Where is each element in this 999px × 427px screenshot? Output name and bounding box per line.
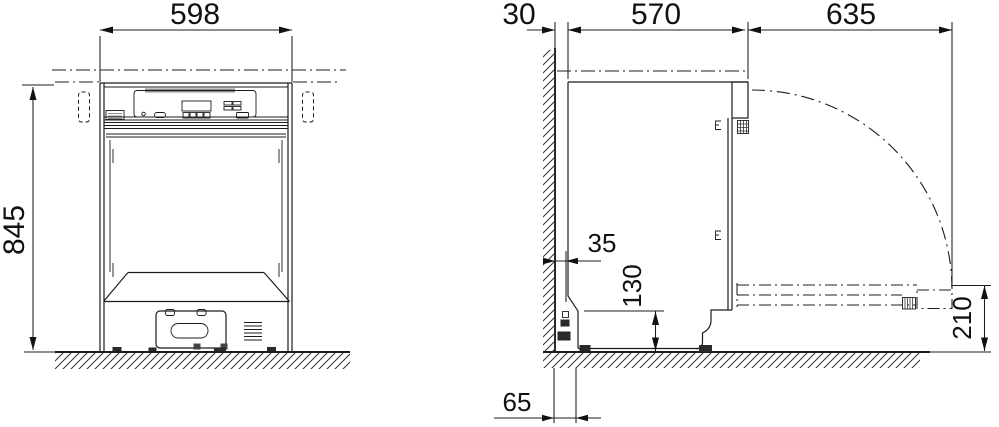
dimension-line bbox=[584, 311, 664, 351]
power-button bbox=[142, 112, 146, 116]
worktop-lines bbox=[52, 70, 346, 82]
dim-wall-clearance-top: 30 bbox=[502, 0, 568, 79]
mounting-tab-lower bbox=[716, 231, 722, 240]
plinth-front bbox=[113, 310, 277, 353]
front-foot bbox=[699, 345, 712, 352]
dim-label-570: 570 bbox=[631, 0, 681, 31]
arrowhead bbox=[652, 312, 659, 326]
arrowhead bbox=[100, 27, 113, 34]
dim-label-65: 65 bbox=[503, 387, 532, 417]
side-bracket-right bbox=[303, 92, 314, 122]
panel-foot-clip bbox=[194, 344, 201, 350]
arrowhead bbox=[576, 415, 588, 421]
side-bracket-left bbox=[79, 92, 90, 122]
arrowhead bbox=[732, 27, 745, 34]
dimension-line bbox=[748, 22, 952, 285]
arrowhead bbox=[279, 27, 292, 34]
floor-front bbox=[55, 352, 350, 369]
dim-label-height: 845 bbox=[0, 205, 31, 255]
door-swing-arc bbox=[752, 90, 952, 290]
arrowhead bbox=[981, 338, 988, 352]
adjusting-screw-door bbox=[903, 298, 916, 310]
service-access-panel bbox=[156, 311, 226, 348]
floor-side bbox=[543, 352, 991, 368]
wall bbox=[543, 48, 555, 353]
arrowhead bbox=[568, 27, 581, 34]
open-door-phantom bbox=[737, 283, 952, 309]
side-view: 30 570 635 bbox=[494, 0, 991, 423]
arrowhead bbox=[542, 27, 555, 34]
dim-label-130: 130 bbox=[617, 264, 647, 307]
front-view: 598 845 bbox=[0, 0, 350, 369]
plinth-side bbox=[697, 310, 733, 349]
dim-label-210: 210 bbox=[947, 296, 977, 339]
display-window bbox=[182, 101, 211, 111]
dim-body-depth: 570 bbox=[568, 0, 745, 34]
appliance-front-outline bbox=[100, 83, 292, 352]
extension-lines bbox=[100, 36, 292, 82]
dim-plinth-height: 130 bbox=[584, 264, 664, 351]
arrowhead bbox=[30, 337, 37, 350]
vent-grille bbox=[244, 323, 262, 341]
door-front bbox=[104, 140, 290, 302]
indicator-grid bbox=[224, 102, 241, 111]
floor-hatch bbox=[55, 353, 350, 369]
control-panel bbox=[106, 89, 256, 120]
dim-label-width: 598 bbox=[170, 0, 220, 31]
dim-open-door-projection: 635 bbox=[748, 0, 952, 285]
arrowhead bbox=[542, 415, 554, 421]
fascia-side bbox=[732, 82, 748, 118]
installation-drawing: 598 845 bbox=[0, 0, 999, 427]
dim-open-door-height: 210 bbox=[947, 286, 991, 352]
rear-hose-clamps bbox=[558, 312, 571, 341]
dim-label-35: 35 bbox=[588, 228, 617, 258]
dishwasher-installation-diagram: 598 845 bbox=[0, 0, 999, 427]
brand-logo bbox=[106, 111, 124, 120]
dim-front-height: 845 bbox=[0, 85, 55, 352]
arrowhead bbox=[939, 27, 952, 34]
rear-foot bbox=[580, 345, 591, 351]
adjusting-screw-top bbox=[738, 121, 749, 134]
arrowhead bbox=[30, 87, 37, 100]
door-side bbox=[728, 118, 732, 310]
arrowhead bbox=[981, 286, 988, 300]
grip-slot bbox=[171, 324, 208, 339]
fascia-panel bbox=[134, 91, 256, 118]
dim-label-635: 635 bbox=[826, 0, 876, 31]
dim-rear-base-clearance: 65 bbox=[494, 368, 601, 423]
wall-hatch bbox=[543, 50, 555, 353]
arrowhead bbox=[748, 27, 761, 34]
floor-hatch bbox=[543, 353, 920, 368]
dim-label-30: 30 bbox=[502, 0, 535, 31]
mounting-tab-upper bbox=[716, 121, 722, 130]
